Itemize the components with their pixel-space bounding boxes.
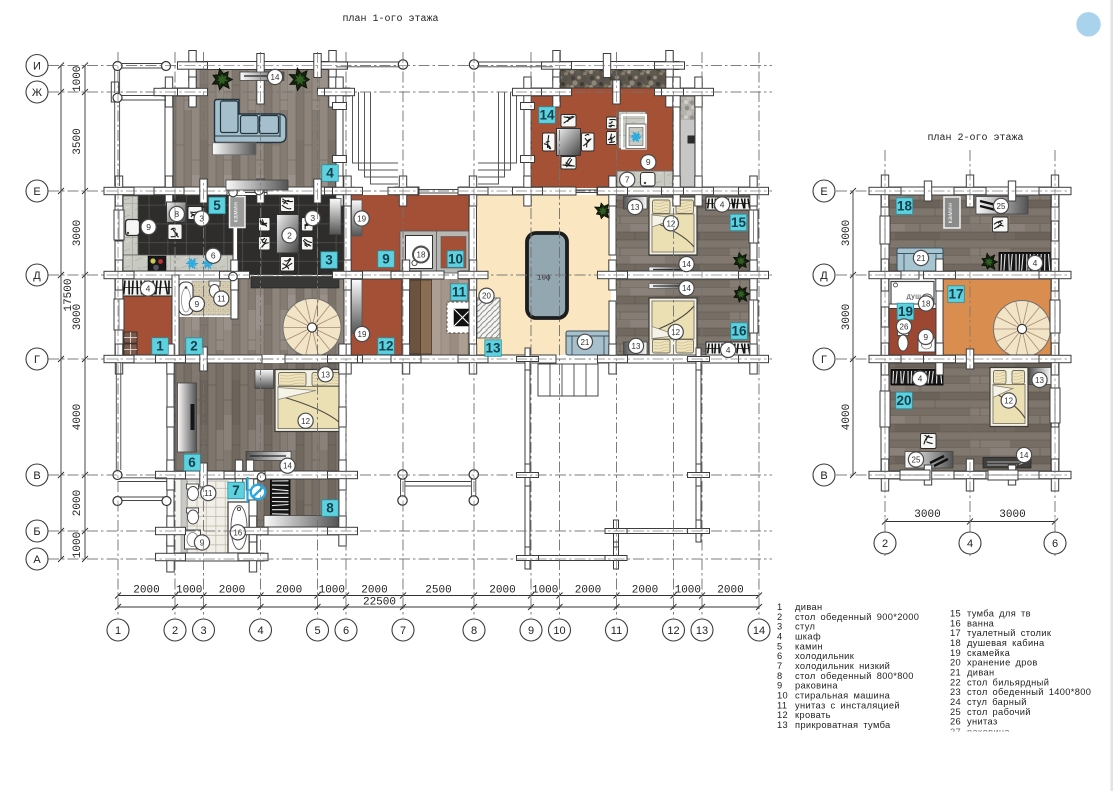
svg-text:7: 7 bbox=[777, 661, 783, 671]
svg-text:17500: 17500 bbox=[63, 278, 75, 311]
svg-text:Е: Е bbox=[33, 186, 40, 198]
svg-text:2: 2 bbox=[287, 230, 292, 240]
svg-text:2000: 2000 bbox=[717, 585, 743, 597]
svg-text:16: 16 bbox=[950, 618, 961, 628]
svg-text:5: 5 bbox=[777, 641, 783, 651]
svg-text:1000: 1000 bbox=[72, 532, 84, 558]
svg-text:18: 18 bbox=[922, 300, 931, 309]
svg-text:2500: 2500 bbox=[425, 585, 451, 597]
svg-text:Г: Г bbox=[821, 354, 827, 366]
svg-text:26: 26 bbox=[950, 717, 961, 727]
svg-text:13: 13 bbox=[777, 720, 788, 730]
svg-text:4: 4 bbox=[257, 625, 263, 637]
svg-text:9: 9 bbox=[382, 252, 390, 267]
svg-text:4: 4 bbox=[777, 632, 783, 642]
svg-text:6: 6 bbox=[1052, 538, 1058, 550]
svg-text:17: 17 bbox=[950, 628, 961, 638]
svg-text:1000: 1000 bbox=[675, 585, 701, 597]
svg-text:12: 12 bbox=[301, 417, 310, 426]
svg-text:шкаф: шкаф bbox=[795, 632, 821, 642]
svg-text:6: 6 bbox=[777, 651, 783, 661]
svg-text:12: 12 bbox=[666, 219, 675, 228]
svg-text:холодильник низкий: холодильник низкий bbox=[795, 661, 890, 671]
svg-text:14: 14 bbox=[539, 108, 555, 123]
svg-text:6: 6 bbox=[188, 455, 196, 470]
svg-text:13: 13 bbox=[1035, 376, 1044, 385]
svg-text:2000: 2000 bbox=[72, 490, 84, 516]
svg-text:1000: 1000 bbox=[176, 585, 202, 597]
svg-text:17: 17 bbox=[948, 287, 963, 302]
svg-text:Е: Е bbox=[820, 186, 827, 198]
svg-text:3000: 3000 bbox=[841, 220, 853, 246]
svg-text:9: 9 bbox=[923, 332, 928, 342]
svg-text:14: 14 bbox=[271, 73, 280, 82]
svg-text:20: 20 bbox=[950, 658, 961, 668]
svg-text:18: 18 bbox=[897, 199, 913, 214]
svg-text:камин: камин bbox=[795, 641, 823, 651]
svg-text:4: 4 bbox=[967, 538, 973, 550]
svg-text:4: 4 bbox=[918, 374, 923, 384]
svg-text:8: 8 bbox=[777, 671, 783, 681]
svg-text:3: 3 bbox=[310, 213, 315, 223]
svg-text:9: 9 bbox=[528, 625, 534, 637]
svg-text:унитаз: унитаз bbox=[967, 717, 998, 727]
svg-text:13: 13 bbox=[696, 625, 708, 637]
svg-text:10: 10 bbox=[777, 691, 788, 701]
svg-text:диван: диван bbox=[967, 668, 995, 678]
svg-text:камин: камин bbox=[947, 203, 954, 224]
svg-text:3000: 3000 bbox=[841, 304, 853, 330]
svg-text:11: 11 bbox=[204, 489, 213, 498]
svg-text:1000: 1000 bbox=[532, 585, 558, 597]
svg-text:стол обеденный 1400*800: стол обеденный 1400*800 bbox=[967, 687, 1091, 697]
svg-text:раковина: раковина bbox=[795, 681, 838, 691]
svg-text:15: 15 bbox=[731, 215, 747, 230]
svg-text:11: 11 bbox=[217, 295, 226, 304]
svg-text:стол обеденный 900*2000: стол обеденный 900*2000 bbox=[795, 612, 919, 622]
svg-text:Д: Д bbox=[820, 270, 828, 282]
svg-text:А: А bbox=[33, 554, 41, 566]
svg-text:прикроватная тумба: прикроватная тумба bbox=[795, 720, 891, 730]
svg-text:6: 6 bbox=[211, 251, 216, 261]
svg-text:4: 4 bbox=[146, 284, 151, 294]
svg-text:8: 8 bbox=[471, 625, 477, 637]
svg-text:2000: 2000 bbox=[632, 585, 658, 597]
svg-text:20: 20 bbox=[482, 292, 491, 301]
svg-text:1000: 1000 bbox=[72, 66, 84, 92]
svg-text:12: 12 bbox=[378, 339, 393, 354]
svg-text:14: 14 bbox=[753, 625, 765, 637]
svg-text:4: 4 bbox=[326, 166, 334, 181]
svg-text:тумба для тв: тумба для тв bbox=[967, 609, 1031, 619]
svg-text:2000: 2000 bbox=[219, 585, 245, 597]
svg-text:9: 9 bbox=[146, 222, 151, 232]
svg-text:8: 8 bbox=[326, 501, 334, 516]
svg-text:2000: 2000 bbox=[276, 585, 302, 597]
svg-text:туалетный столик: туалетный столик bbox=[967, 628, 1052, 638]
svg-text:9: 9 bbox=[200, 538, 205, 548]
svg-text:Ж: Ж bbox=[32, 87, 42, 99]
svg-text:24: 24 bbox=[950, 697, 961, 707]
svg-text:6: 6 bbox=[343, 625, 349, 637]
svg-text:9: 9 bbox=[777, 681, 783, 691]
svg-text:19: 19 bbox=[898, 304, 913, 319]
svg-text:5: 5 bbox=[314, 625, 320, 637]
svg-text:3500: 3500 bbox=[72, 128, 84, 154]
svg-text:22: 22 bbox=[950, 677, 961, 687]
svg-text:16: 16 bbox=[233, 528, 242, 537]
svg-text:22500: 22500 bbox=[363, 597, 396, 609]
svg-text:3000: 3000 bbox=[999, 509, 1025, 521]
svg-text:20: 20 bbox=[896, 393, 911, 408]
svg-text:1: 1 bbox=[115, 625, 121, 637]
svg-text:3: 3 bbox=[777, 622, 783, 632]
svg-text:19: 19 bbox=[358, 330, 367, 339]
svg-text:холодильник: холодильник bbox=[795, 651, 855, 661]
svg-text:12: 12 bbox=[1004, 397, 1013, 406]
svg-text:13: 13 bbox=[632, 342, 641, 351]
svg-text:16: 16 bbox=[731, 324, 747, 339]
svg-text:21: 21 bbox=[917, 254, 926, 263]
svg-text:2000: 2000 bbox=[361, 585, 387, 597]
svg-text:21: 21 bbox=[580, 338, 589, 347]
svg-text:3: 3 bbox=[200, 625, 206, 637]
svg-text:1: 1 bbox=[156, 339, 164, 354]
svg-text:камин: камин bbox=[233, 202, 240, 223]
svg-text:4000: 4000 bbox=[72, 404, 84, 430]
svg-text:12: 12 bbox=[777, 710, 788, 720]
svg-text:14: 14 bbox=[682, 284, 691, 293]
svg-text:18: 18 bbox=[950, 638, 961, 648]
svg-text:2: 2 bbox=[777, 612, 783, 622]
svg-text:3000: 3000 bbox=[914, 509, 940, 521]
svg-text:хранение дров: хранение дров bbox=[967, 658, 1038, 668]
svg-text:23: 23 bbox=[950, 687, 961, 697]
svg-text:скамейка: скамейка bbox=[967, 648, 1011, 658]
svg-text:3000: 3000 bbox=[72, 220, 84, 246]
svg-text:13: 13 bbox=[321, 370, 330, 379]
svg-text:21: 21 bbox=[950, 668, 961, 678]
svg-text:душевая кабина: душевая кабина bbox=[967, 638, 1045, 648]
svg-text:план 2-ого этажа: план 2-ого этажа bbox=[927, 133, 1023, 144]
svg-text:стул барный: стул барный bbox=[967, 697, 1027, 707]
svg-text:стиральная машина: стиральная машина bbox=[795, 691, 891, 701]
svg-text:14: 14 bbox=[682, 260, 691, 269]
svg-text:13: 13 bbox=[485, 341, 501, 356]
svg-text:9: 9 bbox=[646, 157, 651, 167]
svg-text:1000: 1000 bbox=[319, 585, 345, 597]
svg-text:14: 14 bbox=[283, 462, 292, 471]
svg-text:13: 13 bbox=[631, 203, 640, 212]
svg-text:4: 4 bbox=[726, 345, 731, 355]
svg-text:стол обеденный 800*800: стол обеденный 800*800 bbox=[795, 671, 914, 681]
svg-text:11: 11 bbox=[777, 700, 787, 710]
svg-text:14: 14 bbox=[1020, 451, 1029, 460]
svg-text:Г: Г bbox=[34, 354, 40, 366]
svg-text:19: 19 bbox=[950, 648, 961, 658]
svg-text:диван: диван bbox=[795, 602, 823, 612]
svg-text:стул: стул bbox=[795, 622, 815, 632]
svg-text:26: 26 bbox=[900, 323, 909, 332]
svg-text:11: 11 bbox=[611, 625, 622, 637]
svg-text:7: 7 bbox=[400, 625, 406, 637]
svg-text:25: 25 bbox=[950, 707, 961, 717]
svg-text:11: 11 bbox=[452, 285, 467, 300]
svg-text:кровать: кровать bbox=[795, 710, 831, 720]
svg-text:18: 18 bbox=[417, 251, 426, 260]
svg-text:4: 4 bbox=[1033, 258, 1038, 268]
svg-text:7: 7 bbox=[232, 483, 240, 498]
svg-text:19: 19 bbox=[357, 215, 366, 224]
svg-text:12: 12 bbox=[667, 625, 679, 637]
svg-text:2000: 2000 bbox=[133, 585, 159, 597]
svg-text:план 1-ого этажа: план 1-ого этажа bbox=[342, 14, 438, 25]
svg-text:5: 5 bbox=[213, 198, 221, 213]
svg-text:2: 2 bbox=[172, 625, 178, 637]
svg-text:3: 3 bbox=[325, 253, 333, 268]
svg-text:унитаз с инсталяцией: унитаз с инсталяцией bbox=[795, 700, 900, 710]
svg-text:1: 1 bbox=[777, 602, 783, 612]
svg-text:стол рабочий: стол рабочий bbox=[967, 707, 1031, 717]
svg-text:10ф: 10ф bbox=[537, 275, 551, 283]
svg-text:2000: 2000 bbox=[575, 585, 601, 597]
svg-text:10: 10 bbox=[553, 625, 565, 637]
svg-text:10: 10 bbox=[448, 252, 463, 267]
svg-text:2000: 2000 bbox=[489, 585, 515, 597]
svg-text:4: 4 bbox=[720, 200, 725, 210]
svg-text:Д: Д bbox=[33, 270, 41, 282]
svg-text:В: В bbox=[820, 470, 827, 482]
svg-text:9: 9 bbox=[195, 299, 200, 309]
svg-text:12: 12 bbox=[671, 328, 680, 337]
svg-text:И: И bbox=[33, 60, 41, 72]
svg-text:25: 25 bbox=[912, 456, 921, 465]
svg-text:4000: 4000 bbox=[841, 404, 853, 430]
svg-text:15: 15 bbox=[950, 609, 961, 619]
svg-text:В: В bbox=[33, 470, 40, 482]
svg-text:Б: Б bbox=[33, 526, 40, 538]
svg-text:2: 2 bbox=[882, 538, 888, 550]
svg-text:стол бильярдный: стол бильярдный bbox=[967, 677, 1049, 687]
svg-text:7: 7 bbox=[625, 175, 630, 185]
svg-text:ванна: ванна bbox=[967, 618, 995, 628]
svg-text:2: 2 bbox=[190, 339, 198, 354]
svg-text:25: 25 bbox=[997, 202, 1006, 211]
